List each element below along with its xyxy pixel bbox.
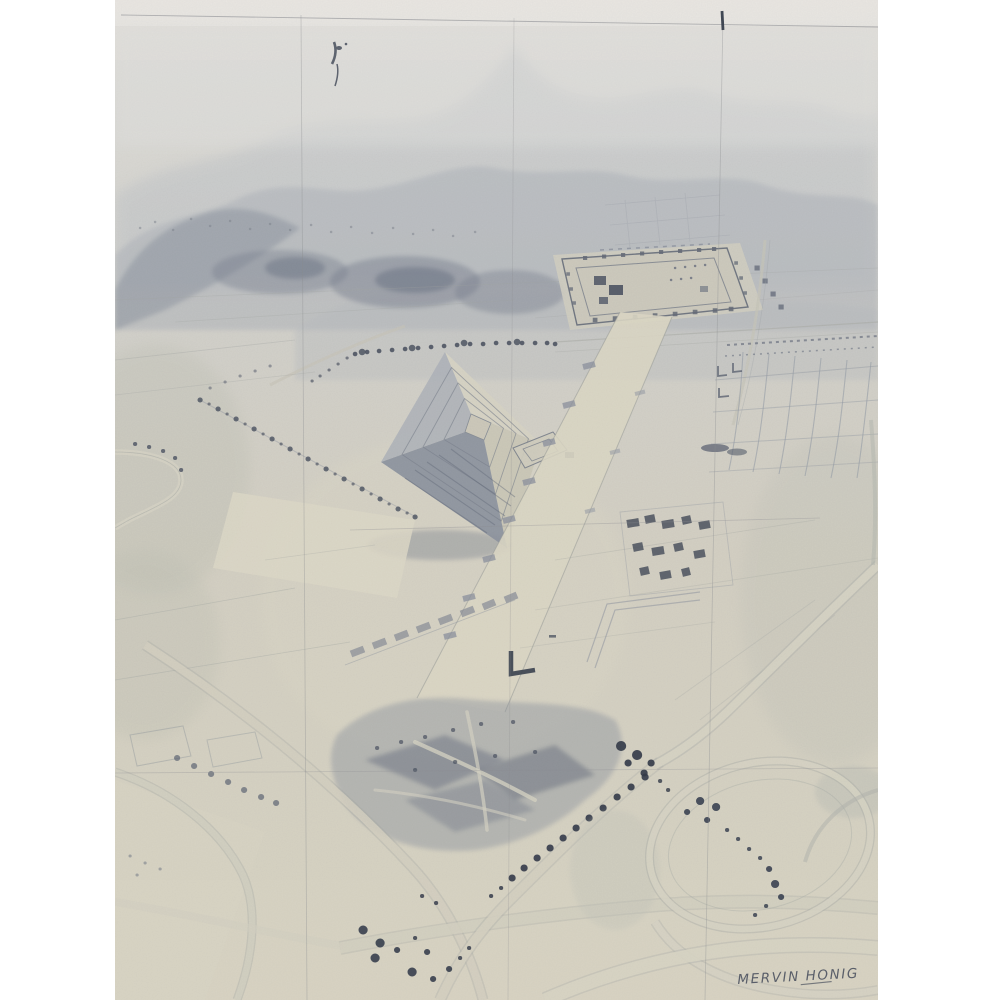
- drawing-canvas: MERVIN HONIG: [115, 0, 878, 1000]
- pencil-drawing: MERVIN HONIG: [115, 0, 878, 1000]
- photo-of-drawing: MERVIN HONIG: [0, 0, 1000, 1000]
- paper-grain: [115, 0, 878, 1000]
